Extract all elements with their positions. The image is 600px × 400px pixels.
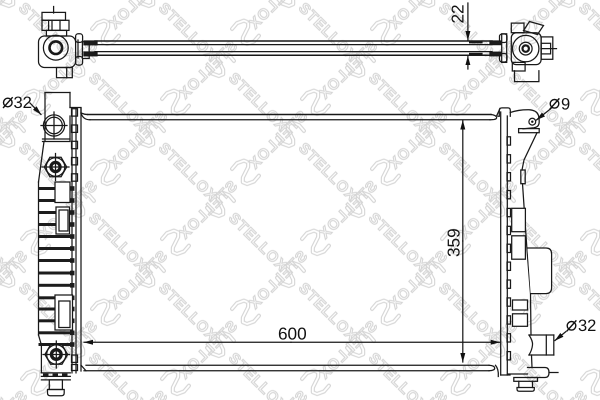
svg-text:600: 600 — [278, 324, 307, 344]
svg-text:359: 359 — [444, 228, 464, 257]
svg-text:22: 22 — [448, 4, 468, 23]
svg-text:32: 32 — [578, 317, 596, 335]
svg-text:9: 9 — [561, 95, 570, 113]
svg-text:32: 32 — [14, 94, 32, 112]
